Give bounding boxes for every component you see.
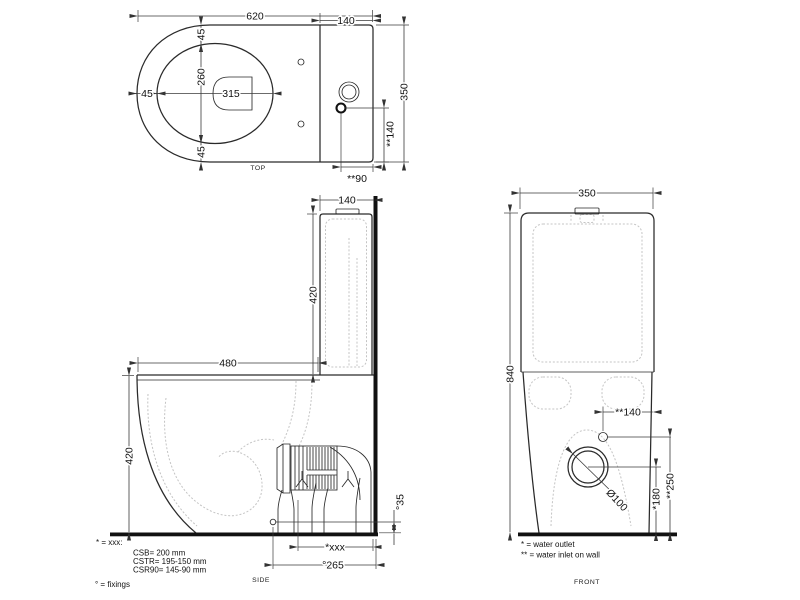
dim-total-width-label: 620 (246, 11, 264, 23)
corrugation-ribs (307, 447, 334, 489)
break-mark (296, 471, 308, 487)
dim-gap-left-label: 45 (141, 88, 153, 100)
dim-bowl-depth-label: 480 (219, 358, 237, 370)
front-hidden-lines (529, 215, 644, 527)
dim-gap-top-label: 45 (196, 29, 208, 41)
top-view: 620 140 350 45 260 45 45 315 **140 **90 … (130, 10, 411, 185)
dim-opening-length-label: 315 (222, 88, 240, 100)
fixing-hole (298, 59, 304, 65)
dim-fixing-height-label: °35 (395, 494, 407, 510)
water-inlet-circle-inner (342, 85, 356, 99)
dim-front-width-label: 350 (578, 188, 596, 200)
outlet-leg-right (356, 478, 360, 533)
flush-button (336, 209, 359, 214)
break-mark (342, 471, 354, 487)
dim-inlet-from-wall-label: **90 (347, 173, 367, 185)
pipe-flange (277, 444, 290, 493)
toilet-dimension-drawing: 620 140 350 45 260 45 45 315 **140 **90 … (0, 0, 800, 600)
dim-outlet-diameter-label: Ø100 (603, 487, 629, 514)
side-view-label: SIDE (252, 577, 270, 584)
technical-drawing-page: 620 140 350 45 260 45 45 315 **140 **90 … (0, 0, 800, 600)
fixing-hole (298, 121, 304, 127)
elbow-outer (337, 446, 371, 533)
dim-outlet-distance-label: *xxx (325, 542, 346, 554)
legend-line: ** = water inlet on wall (521, 551, 600, 560)
legend-line: * = xxx: (96, 538, 122, 547)
floor-fixing-hole (270, 519, 276, 525)
dim-inlet-height-label: **250 (665, 473, 677, 499)
side-legend: * = xxx: CSB= 200 mm CSTR= 195-150 mm CS… (95, 538, 207, 589)
dim-side-tank-depth-label: 140 (338, 195, 356, 207)
dim-front-inlet-offset-label: **140 (615, 407, 641, 419)
outlet-leg-left (278, 490, 294, 533)
front-tank-outline (521, 213, 654, 372)
bowl-front-curve (137, 375, 196, 533)
legend-line: CSR90= 145-90 mm (133, 566, 206, 575)
floor-line (110, 533, 378, 537)
corrugated-hose (291, 446, 337, 490)
dim-outlet-height-label: *180 (651, 488, 663, 510)
front-pedestal-left (523, 372, 539, 533)
dim-opening-width-label: 260 (196, 68, 208, 86)
front-view: 350 840 **140 Ø100 *180 **250 * = water … (504, 188, 677, 587)
elbow-inner-arc (330, 447, 360, 500)
outlet-leg-middle (312, 483, 328, 533)
wall-inlet-marker (337, 104, 346, 113)
water-inlet-hole (599, 433, 608, 442)
top-view-label: TOP (250, 165, 265, 172)
dim-fixing-distance-label: °265 (322, 560, 344, 572)
dim-bowl-height-label: 420 (124, 447, 136, 465)
dim-tank-height-label: 420 (308, 286, 320, 304)
side-view: 140 420 480 420 °35 *xxx °265 * = xxx: C… (95, 195, 407, 590)
dim-tank-depth-label: 140 (337, 15, 355, 27)
front-legend: * = water outlet ** = water inlet on wal… (521, 540, 600, 560)
legend-line: * = water outlet (521, 540, 575, 549)
legend-line: ° = fixings (95, 580, 130, 589)
dim-total-depth-label: 350 (399, 83, 411, 101)
outlet-pipe (277, 444, 371, 533)
dim-gap-bottom-label: 45 (196, 146, 208, 158)
wall-line (374, 196, 378, 536)
front-floor-line (518, 533, 677, 537)
side-view-dimensions (122, 195, 401, 569)
front-view-label: FRONT (574, 579, 600, 586)
dim-inlet-from-side-label: **140 (385, 121, 397, 147)
front-view-dimensions (504, 188, 671, 533)
dim-total-height-label: 840 (505, 365, 517, 383)
side-tank-outline (320, 214, 372, 375)
